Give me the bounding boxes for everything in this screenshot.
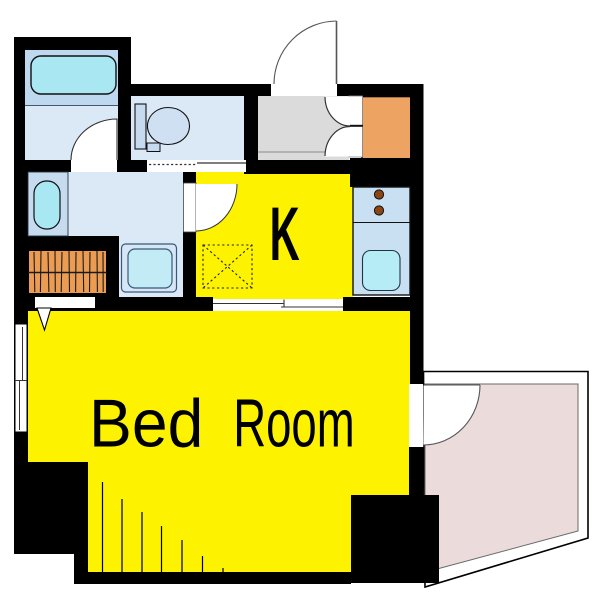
svg-text:Bed: Bed <box>89 386 203 462</box>
svg-text:K: K <box>270 192 300 276</box>
svg-text:Room: Room <box>233 386 354 461</box>
